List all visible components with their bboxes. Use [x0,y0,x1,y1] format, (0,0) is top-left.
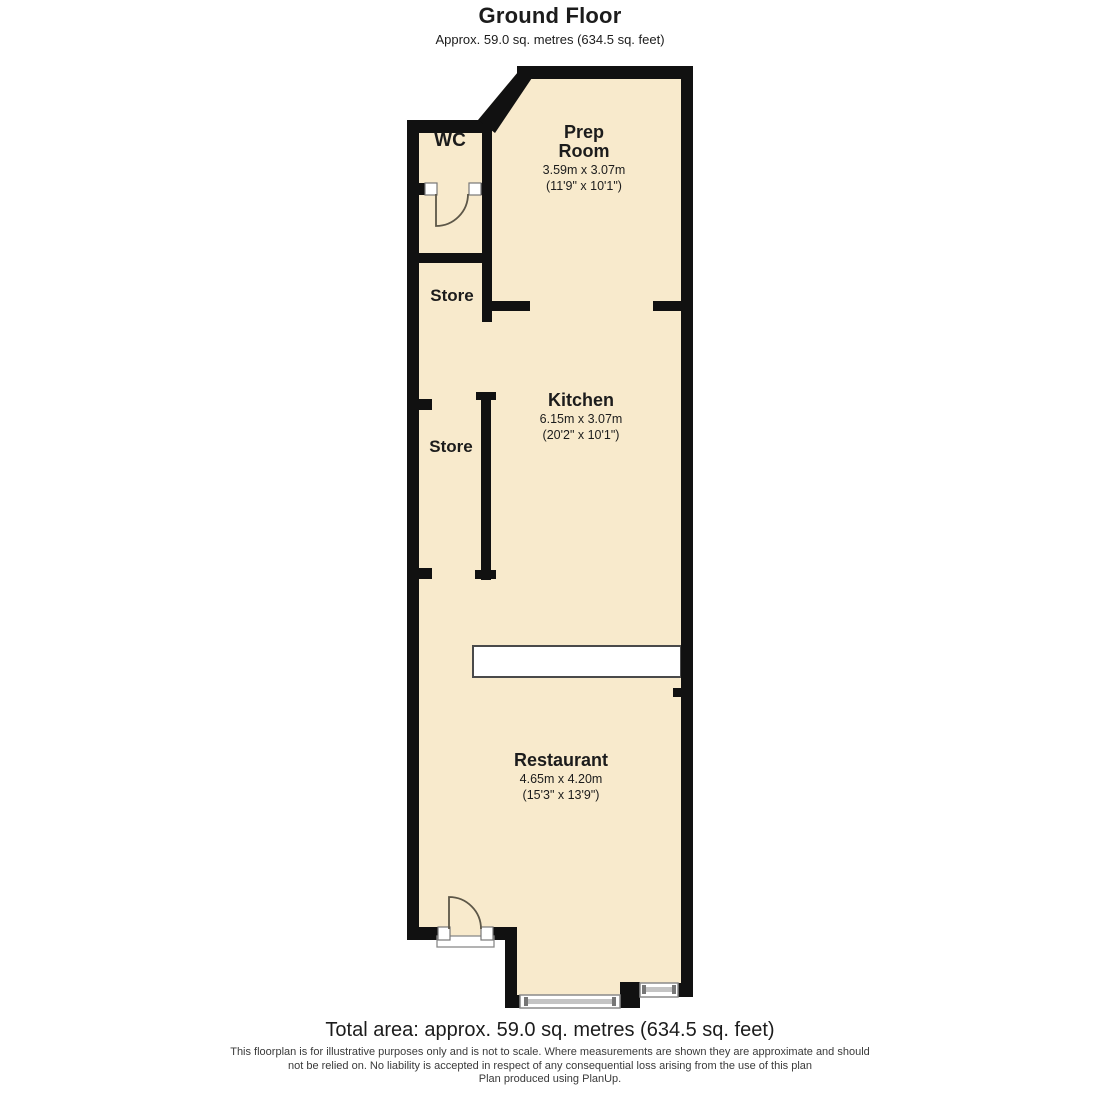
left-wall-stub-lower [419,568,432,579]
disclaimer-line-2: not be relied on. No liability is accept… [0,1060,1100,1074]
kitchen-name: Kitchen [471,391,691,410]
bottom-left-wall-a [407,927,438,940]
room-label-restaurant: Restaurant 4.65m x 4.20m (15'3" x 13'9") [451,751,671,802]
disclaimer-text: This floorplan is for illustrative purpo… [0,1046,1100,1087]
disclaimer-line-3: Plan produced using PlanUp. [0,1073,1100,1087]
restaurant-dims-metric: 4.65m x 4.20m [451,772,671,786]
floor-area [407,66,693,1008]
kitchen-dims-metric: 6.15m x 3.07m [471,412,691,426]
front-window-left-tick-b [612,997,616,1006]
page-title: Ground Floor [0,3,1100,29]
counter-bar [473,646,681,677]
left-wall-stub-upper [419,399,432,410]
store-lower-cap-bottom [475,570,496,579]
room-label-prep-room: Prep Room 3.59m x 3.07m (11'9" x 10'1") [474,123,694,193]
right-wall [681,66,693,997]
left-wall [407,120,419,940]
kitchen-dims-imperial: (20'2" x 10'1") [471,428,691,442]
wc-door-jamb-left [425,183,437,195]
plan-header: Ground Floor Approx. 59.0 sq. metres (63… [0,3,1100,47]
prep-room-dims-metric: 3.59m x 3.07m [474,163,694,177]
room-label-kitchen: Kitchen 6.15m x 3.07m (20'2" x 10'1") [471,391,691,442]
front-window-left [520,995,620,1008]
disclaimer-line-1: This floorplan is for illustrative purpo… [0,1046,1100,1060]
prep-room-name-line2: Room [474,142,694,161]
top-wall [517,66,693,79]
entrance-door-jamb-right [481,927,493,940]
right-wall-tick [673,688,681,697]
prep-room-name-line1: Prep [474,123,694,142]
page-subtitle: Approx. 59.0 sq. metres (634.5 sq. feet) [0,32,1100,47]
restaurant-dims-imperial: (15'3" x 13'9") [451,788,671,802]
restaurant-name: Restaurant [451,751,671,770]
front-window-right-tick-b [672,985,676,994]
front-window-right-glass [646,987,672,992]
wc-bottom-wall-left [407,183,425,195]
room-label-store-upper: Store [409,286,495,306]
front-window-right-tick-a [642,985,646,994]
prep-room-dims-imperial: (11'9" x 10'1") [474,179,694,193]
front-window-left-glass [527,999,613,1004]
kitchen-divider-right [653,301,681,311]
bottom-step-block [620,982,640,1008]
front-window-left-tick-a [524,997,528,1006]
total-area-text: Total area: approx. 59.0 sq. metres (634… [0,1019,1100,1042]
floorplan-page: Ground Floor Approx. 59.0 sq. metres (63… [0,0,1100,1100]
front-window-right [640,983,678,997]
store-upper-top-wall [407,253,492,263]
room-label-store-lower: Store [408,437,494,457]
